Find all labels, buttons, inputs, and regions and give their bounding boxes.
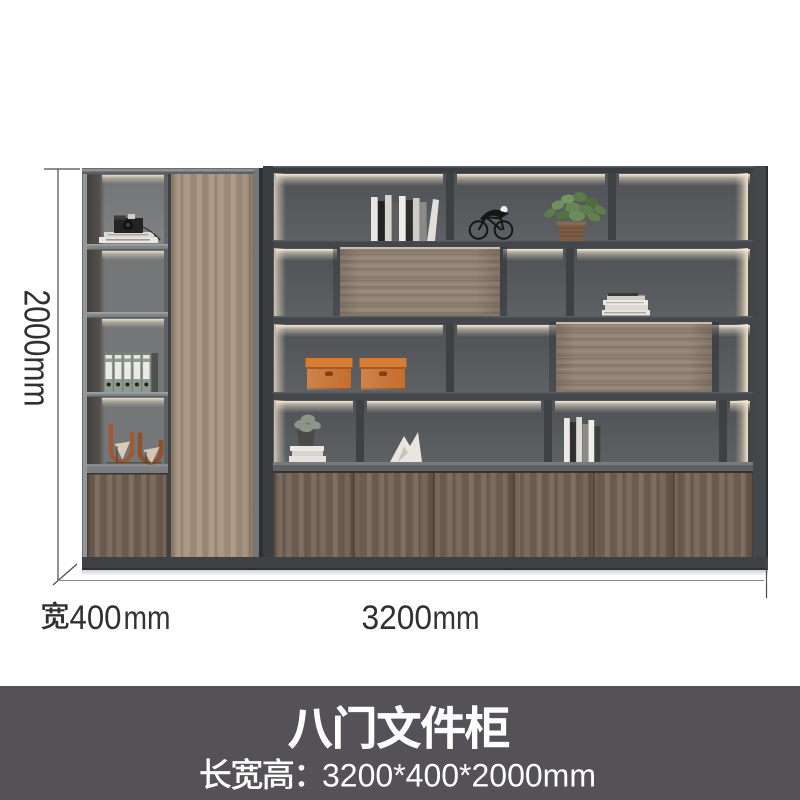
svg-text:mm: mm xyxy=(433,599,480,636)
svg-text:mm: mm xyxy=(124,599,171,636)
svg-text:400: 400 xyxy=(70,599,122,637)
svg-text:3200: 3200 xyxy=(362,599,433,637)
svg-text:2000mm: 2000mm xyxy=(17,290,58,407)
svg-text:3200*400*2000mm: 3200*400*2000mm xyxy=(322,758,596,794)
